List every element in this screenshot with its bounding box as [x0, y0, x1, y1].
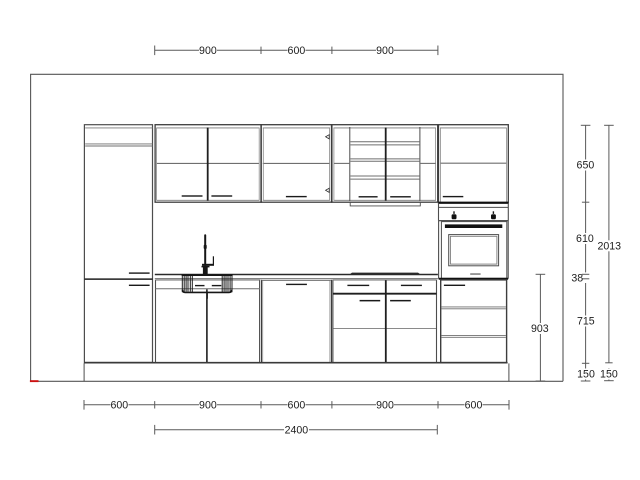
- svg-text:2013: 2013: [598, 240, 622, 252]
- svg-text:38: 38: [571, 272, 583, 284]
- svg-text:600: 600: [110, 400, 128, 412]
- svg-text:900: 900: [376, 400, 394, 412]
- svg-text:610: 610: [576, 233, 594, 245]
- svg-text:600: 600: [288, 45, 306, 57]
- svg-text:600: 600: [288, 400, 306, 412]
- svg-text:903: 903: [531, 323, 549, 335]
- svg-text:650: 650: [577, 160, 595, 172]
- svg-text:150: 150: [600, 369, 618, 381]
- svg-text:900: 900: [199, 45, 217, 57]
- svg-text:600: 600: [465, 400, 483, 412]
- svg-text:715: 715: [577, 316, 595, 328]
- svg-text:900: 900: [199, 400, 217, 412]
- svg-text:150: 150: [577, 369, 595, 381]
- svg-text:2400: 2400: [285, 424, 309, 436]
- svg-text:900: 900: [376, 45, 394, 57]
